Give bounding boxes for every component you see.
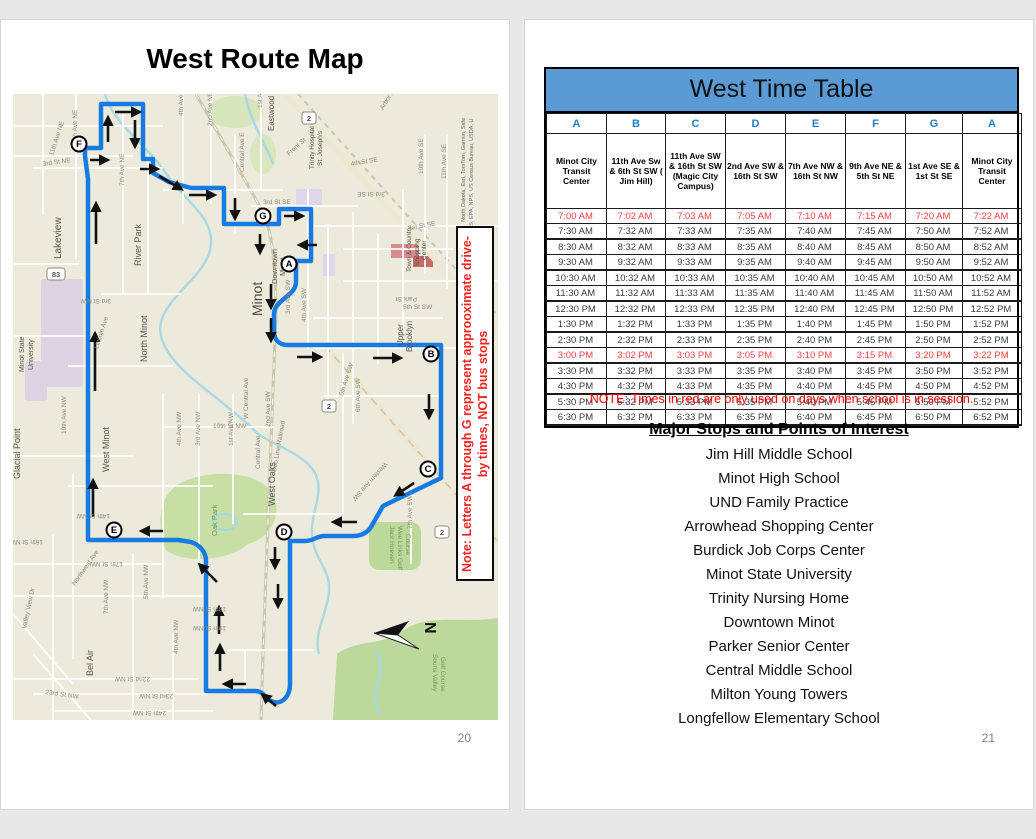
- time-cell: 10:45 AM: [846, 270, 906, 286]
- highway-badge: 83: [52, 270, 60, 279]
- west-time-table: West Time Table ABCDEFGA Minot City Tran…: [544, 67, 1019, 428]
- route-marker-letter: D: [281, 527, 288, 538]
- stop-item: Burdick Job Corps Center: [525, 539, 1033, 563]
- stop-item: Downtown Minot: [525, 611, 1033, 635]
- map-place-label: Wee Links Golf: [396, 526, 403, 570]
- time-cell: 9:40 AM: [786, 255, 846, 271]
- map-street-label: 5th St SW: [403, 304, 433, 311]
- time-cell: 8:35 AM: [726, 239, 786, 255]
- time-cell: 8:50 AM: [906, 239, 963, 255]
- map-street-label: 4th Ave: [178, 94, 185, 116]
- stop-item: UND Family Practice: [525, 491, 1033, 515]
- station-header: Minot City Transit Center: [547, 134, 607, 209]
- time-cell: 7:50 AM: [906, 224, 963, 240]
- time-cell: 3:33 PM: [666, 363, 726, 379]
- station-header: 11th Ave Sw & 6th St SW ( Jim Hill): [607, 134, 666, 209]
- map-place-label: Glacial Point: [13, 428, 22, 479]
- time-cell: 9:35 AM: [726, 255, 786, 271]
- highway-badge: 2: [307, 114, 311, 123]
- time-cell: 9:50 AM: [906, 255, 963, 271]
- map-place-label: Shopping: [414, 238, 421, 266]
- time-cell: 7:33 AM: [666, 224, 726, 240]
- red-times-note: NOTE: Times in red are only used on days…: [544, 392, 1019, 406]
- time-cell: 3:22 PM: [963, 348, 1022, 364]
- time-cell: 10:35 AM: [726, 270, 786, 286]
- time-cell: 1:33 PM: [666, 317, 726, 333]
- stop-item: Trinity Nursing Home: [525, 587, 1033, 611]
- time-cell: 1:30 PM: [547, 317, 607, 333]
- map-place-label: Oak Park: [210, 504, 219, 536]
- map-street-label: 18th St NW: [192, 605, 226, 612]
- time-cell: 12:45 PM: [846, 301, 906, 317]
- column-letter: A: [963, 114, 1022, 134]
- time-cell: 7:45 AM: [846, 224, 906, 240]
- route-map: 83222 LakeviewRiver ParkNorth MinotMinot…: [13, 94, 498, 720]
- time-cell: 11:30 AM: [547, 286, 607, 302]
- map-street-label: 3rd St SE: [357, 190, 385, 197]
- time-cell: 11:40 AM: [786, 286, 846, 302]
- map-street-label: Central Ave: [255, 435, 262, 469]
- time-cell: 7:20 AM: [906, 209, 963, 224]
- time-table-title: West Time Table: [546, 69, 1017, 113]
- time-cell: 10:52 AM: [963, 270, 1022, 286]
- time-cell: 8:40 AM: [786, 239, 846, 255]
- stop-item: Longfellow Elementary School: [525, 707, 1033, 731]
- time-cell: 9:52 AM: [963, 255, 1022, 271]
- map-street-label: 5th Ave NW: [143, 564, 150, 599]
- compass-north-label: N: [421, 622, 438, 634]
- map-place-label: Lakeview: [53, 217, 64, 259]
- map-street-label: 1st Ave: [257, 94, 264, 108]
- stop-item: Parker Senior Center: [525, 635, 1033, 659]
- map-place-label: North Minot: [139, 315, 149, 362]
- time-cell: 1:50 PM: [906, 317, 963, 333]
- map-street-label: W Central Ave: [243, 377, 250, 419]
- time-cell: 7:05 AM: [726, 209, 786, 224]
- station-header: 7th Ave NW & 16th St NW: [786, 134, 846, 209]
- major-stops-heading: Major Stops and Points of Interest: [525, 421, 1033, 439]
- route-marker-letter: C: [425, 464, 432, 475]
- time-cell: 7:40 AM: [786, 224, 846, 240]
- document-viewer: { "left_page": { "title": "West Route Ma…: [0, 0, 1036, 839]
- route-marker-letter: B: [428, 349, 435, 360]
- column-letter: G: [906, 114, 963, 134]
- time-cell: 10:40 AM: [786, 270, 846, 286]
- time-row: 3:30 PM3:32 PM3:33 PM3:35 PM3:40 PM3:45 …: [547, 363, 1022, 379]
- time-cell: 3:05 PM: [726, 348, 786, 364]
- time-cell: 8:45 AM: [846, 239, 906, 255]
- stop-item: Central Middle School: [525, 659, 1033, 683]
- station-header: 2nd Ave SW & 16th St SW: [726, 134, 786, 209]
- time-cell: 7:15 AM: [846, 209, 906, 224]
- time-cell: 7:02 AM: [607, 209, 666, 224]
- map-street-label: 3rd Ave NW: [195, 411, 202, 446]
- map-street-label: 4th Ave SW: [301, 287, 308, 322]
- time-row: 12:30 PM12:32 PM12:33 PM12:35 PM12:40 PM…: [547, 301, 1022, 317]
- column-letter: E: [786, 114, 846, 134]
- station-header: 9th Ave NE & 5th St NE: [846, 134, 906, 209]
- route-marker-letter: G: [259, 211, 266, 222]
- map-street-label: 10th Ave SE: [418, 138, 425, 174]
- column-letter: A: [547, 114, 607, 134]
- time-cell: 11:33 AM: [666, 286, 726, 302]
- time-row: 7:00 AM7:02 AM7:03 AM7:05 AM7:10 AM7:15 …: [547, 209, 1022, 224]
- time-cell: 3:03 PM: [666, 348, 726, 364]
- time-cell: 1:32 PM: [607, 317, 666, 333]
- time-cell: 9:32 AM: [607, 255, 666, 271]
- time-cell: 1:45 PM: [846, 317, 906, 333]
- time-cell: 12:32 PM: [607, 301, 666, 317]
- map-street-label: 4th Ave NW: [173, 619, 180, 654]
- time-cell: 7:32 AM: [607, 224, 666, 240]
- time-cell: 3:02 PM: [607, 348, 666, 364]
- time-cell: 3:30 PM: [547, 363, 607, 379]
- time-cell: 8:33 AM: [666, 239, 726, 255]
- time-cell: 1:35 PM: [726, 317, 786, 333]
- route-map-title: West Route Map: [1, 43, 509, 75]
- time-cell: 2:52 PM: [963, 332, 1022, 348]
- map-street-label: 3rd St SE: [263, 199, 291, 206]
- time-cell: 7:35 AM: [726, 224, 786, 240]
- route-marker-letter: E: [111, 525, 117, 536]
- time-cell: 3:20 PM: [906, 348, 963, 364]
- map-place-label: Brooklyn: [405, 321, 414, 352]
- time-cell: 12:35 PM: [726, 301, 786, 317]
- time-cell: 11:50 AM: [906, 286, 963, 302]
- map-place-label: Eastwood: [267, 96, 276, 131]
- highway-badge: 2: [440, 528, 444, 537]
- time-cell: 3:50 PM: [906, 363, 963, 379]
- map-place-label: St. Joseph's: [317, 130, 324, 166]
- time-row: 7:30 AM7:32 AM7:33 AM7:35 AM7:40 AM7:45 …: [547, 224, 1022, 240]
- map-street-label: 10th Ave NW: [61, 395, 68, 434]
- map-place-label: Course: [404, 534, 411, 555]
- station-headers-row: Minot City Transit Center11th Ave Sw & 6…: [547, 134, 1022, 209]
- time-row: 1:30 PM1:32 PM1:33 PM1:35 PM1:40 PM1:45 …: [547, 317, 1022, 333]
- time-cell: 1:52 PM: [963, 317, 1022, 333]
- time-cell: 7:30 AM: [547, 224, 607, 240]
- time-cell: 7:10 AM: [786, 209, 846, 224]
- map-street-label: 16th St NW: [13, 538, 43, 545]
- time-cell: 10:50 AM: [906, 270, 963, 286]
- page-number-right: 21: [982, 731, 995, 745]
- station-header: 11th Ave SW & 16th St SW (Magic City Cam…: [666, 134, 726, 209]
- map-place-label: Town & Country: [406, 225, 413, 272]
- map-street-label: 3rd St NW: [80, 297, 111, 304]
- time-row: 3:00 PM3:02 PM3:03 PM3:05 PM3:10 PM3:15 …: [547, 348, 1022, 364]
- station-header: Minot City Transit Center: [963, 134, 1022, 209]
- page-left: West Route Map: [0, 19, 510, 810]
- time-cell: 3:52 PM: [963, 363, 1022, 379]
- map-place-label: Jack Hoeven: [388, 526, 395, 564]
- time-cell: 12:50 PM: [906, 301, 963, 317]
- time-cell: 2:35 PM: [726, 332, 786, 348]
- map-place-label: Upper: [396, 324, 405, 346]
- time-cell: 7:03 AM: [666, 209, 726, 224]
- route-map-svg: 83222 LakeviewRiver ParkNorth MinotMinot…: [13, 94, 498, 720]
- map-street-label: 7th Ave SW: [407, 494, 414, 529]
- time-cell: 2:33 PM: [666, 332, 726, 348]
- map-street-label: Central Ave E: [239, 132, 246, 172]
- time-cell: 2:50 PM: [906, 332, 963, 348]
- time-cell: 10:33 AM: [666, 270, 726, 286]
- map-street-label: 2nd Ave NE: [207, 94, 214, 126]
- time-cell: 2:30 PM: [547, 332, 607, 348]
- map-street-label: 7th Ave NE: [119, 153, 126, 186]
- time-cell: 7:52 AM: [963, 224, 1022, 240]
- time-cell: 11:35 AM: [726, 286, 786, 302]
- time-table: ABCDEFGA Minot City Transit Center11th A…: [546, 113, 1022, 426]
- column-letters-row: ABCDEFGA: [547, 114, 1022, 134]
- map-place-label: Center: [421, 240, 428, 260]
- time-cell: 3:32 PM: [607, 363, 666, 379]
- map-street-label: 10th St NW: [213, 423, 247, 430]
- time-cell: 12:40 PM: [786, 301, 846, 317]
- map-street-label: 3rd Ave SW: [285, 279, 292, 314]
- map-street-label: 7th Ave NW: [103, 579, 110, 614]
- map-attribution-line1: North Dakota, Esri, TomTom, Garmin, Safe: [461, 118, 467, 222]
- time-cell: 12:52 PM: [963, 301, 1022, 317]
- time-cell: 8:32 AM: [607, 239, 666, 255]
- route-marker-letter: A: [286, 259, 293, 270]
- time-cell: 3:10 PM: [786, 348, 846, 364]
- column-letter: F: [846, 114, 906, 134]
- column-letter: D: [726, 114, 786, 134]
- time-cell: 8:30 AM: [547, 239, 607, 255]
- map-place-label: Minot State: [19, 336, 26, 372]
- column-letter: C: [666, 114, 726, 134]
- time-cell: 1:40 PM: [786, 317, 846, 333]
- time-cell: 3:45 PM: [846, 363, 906, 379]
- stop-item: Minot High School: [525, 467, 1033, 491]
- map-place-label: Trinity Hospital: [309, 126, 316, 169]
- stop-item: Milton Young Towers: [525, 683, 1033, 707]
- map-place-label: West Minot: [101, 427, 111, 472]
- map-street-label: Park St: [395, 295, 417, 302]
- time-cell: 10:30 AM: [547, 270, 607, 286]
- map-street-label: 6th Ave SW: [355, 377, 362, 412]
- time-cell: 2:40 PM: [786, 332, 846, 348]
- stop-item: Arrowhead Shopping Center: [525, 515, 1033, 539]
- map-note-box: Note: Letters A through G represent appr…: [456, 226, 494, 581]
- map-street-label: 14th St NW: [76, 512, 110, 519]
- highway-badge: 2: [327, 402, 331, 411]
- time-cell: 11:52 AM: [963, 286, 1022, 302]
- route-marker-letter: F: [76, 139, 82, 150]
- stop-item: Minot State University: [525, 563, 1033, 587]
- time-cell: 10:32 AM: [607, 270, 666, 286]
- time-cell: 3:15 PM: [846, 348, 906, 364]
- time-cell: 7:00 AM: [547, 209, 607, 224]
- time-row: 2:30 PM2:32 PM2:33 PM2:35 PM2:40 PM2:45 …: [547, 332, 1022, 348]
- time-row: 11:30 AM11:32 AM11:33 AM11:35 AM11:40 AM…: [547, 286, 1022, 302]
- map-street-label: 24th St NW: [132, 709, 166, 716]
- time-cell: 11:45 AM: [846, 286, 906, 302]
- map-place-label: Golf Course: [439, 657, 446, 692]
- time-cell: 12:30 PM: [547, 301, 607, 317]
- time-row: 8:30 AM8:32 AM8:33 AM8:35 AM8:40 AM8:45 …: [547, 239, 1022, 255]
- time-cell: 3:00 PM: [547, 348, 607, 364]
- time-cell: 9:45 AM: [846, 255, 906, 271]
- page-right: West Time Table ABCDEFGA Minot City Tran…: [524, 19, 1034, 810]
- major-stops-section: Major Stops and Points of Interest Jim H…: [525, 421, 1033, 731]
- map-street-label: 19th St NW: [192, 624, 226, 631]
- map-place-label: Minot: [249, 282, 265, 316]
- time-row: 10:30 AM10:32 AM10:33 AM10:35 AM10:40 AM…: [547, 270, 1022, 286]
- map-street-label: 2nd Ave SW: [265, 390, 272, 427]
- time-cell: 8:52 AM: [963, 239, 1022, 255]
- map-place-label: River Park: [133, 223, 143, 266]
- time-cell: 2:45 PM: [846, 332, 906, 348]
- time-cell: 2:32 PM: [607, 332, 666, 348]
- map-note-text: Note: Letters A through G represent appr…: [459, 232, 492, 576]
- map-street-label: 4th Ave NW: [176, 411, 183, 446]
- time-cell: 9:33 AM: [666, 255, 726, 271]
- column-letter: B: [607, 114, 666, 134]
- time-cell: 11:32 AM: [607, 286, 666, 302]
- map-place-label: University: [28, 339, 35, 370]
- map-attribution-line2: GS, EPA, NPS, US Census Bureau, USDA, U: [469, 119, 475, 230]
- time-row: 9:30 AM9:32 AM9:33 AM9:35 AM9:40 AM9:45 …: [547, 255, 1022, 271]
- time-cell: 7:22 AM: [963, 209, 1022, 224]
- stop-item: Jim Hill Middle School: [525, 443, 1033, 467]
- map-street-label: 23rd St NW: [139, 692, 173, 699]
- map-place-label: Bel Air: [85, 650, 95, 676]
- time-cell: 3:35 PM: [726, 363, 786, 379]
- station-header: 1st Ave SE & 1st St SE: [906, 134, 963, 209]
- time-cell: 12:33 PM: [666, 301, 726, 317]
- map-street-label: 11th Ave SE: [441, 143, 448, 179]
- page-number-left: 20: [458, 731, 471, 745]
- major-stops-list: Jim Hill Middle SchoolMinot High SchoolU…: [525, 443, 1033, 731]
- time-cell: 3:40 PM: [786, 363, 846, 379]
- map-place-label: Souris Valley: [431, 654, 438, 692]
- time-cell: 9:30 AM: [547, 255, 607, 271]
- map-street-label: 22nd St NW: [114, 675, 150, 682]
